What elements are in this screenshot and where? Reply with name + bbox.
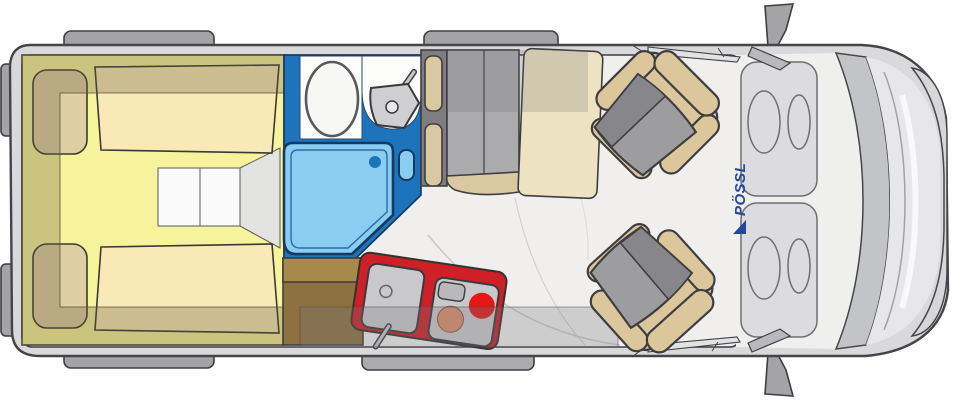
bench-headrest-bottom [425, 124, 442, 186]
rear-bedroom [22, 55, 284, 345]
bench-front-cushion [447, 172, 525, 195]
dinette [421, 48, 603, 198]
stove-control-panel [437, 281, 465, 302]
sink-drain [379, 285, 393, 299]
side-mirror-top [765, 4, 793, 47]
possl-logo-text: PÖSSL [732, 163, 749, 216]
sliding-door-overlay [300, 307, 618, 347]
floorplan-canvas: PÖSSL [0, 0, 960, 400]
walkway-step [200, 168, 240, 226]
overhead-locker-overlay-dinette [447, 50, 588, 112]
camper-van-floorplan: PÖSSL [0, 0, 960, 400]
cab-door-panel-bottom [741, 203, 817, 337]
bench-headrest-top [425, 56, 442, 111]
basin-drain [386, 101, 398, 113]
toilet [306, 62, 358, 136]
shower-shelf [399, 150, 414, 180]
walkway-step [158, 168, 200, 226]
side-mirror-bottom [765, 353, 793, 396]
cabinet-counter [283, 258, 363, 282]
shower-drain [369, 156, 381, 168]
